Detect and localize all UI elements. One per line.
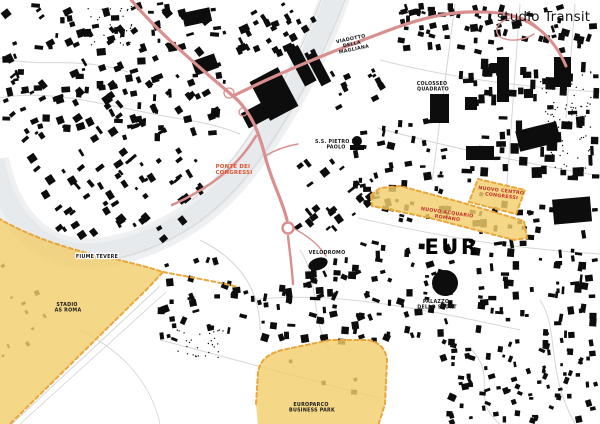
colosseo-quadrato-building: [465, 97, 477, 110]
studio-transit-logo: studio Transit: [497, 9, 590, 25]
label-ponte-dei-congressi: PONTE DEI CONGRESSI: [215, 164, 252, 176]
label-eur: EUR: [424, 235, 479, 259]
label-velodromo: VELODROMO: [309, 250, 346, 256]
roundabout: [283, 223, 294, 234]
label-viadotto-della-magliana: VIADOTTO DELLA MAGLIANA: [336, 33, 371, 56]
label-europarco-business-park: EUROPARCO BUSINESS PARK: [289, 402, 335, 413]
label-stadio-as-roma: STADIO AS ROMA: [55, 302, 82, 313]
palazzo-dello-sport-building: [432, 270, 458, 296]
label-fiume-tevere: FIUME TEVERE: [76, 254, 118, 260]
map-canvas: VIADOTTO DELLA MAGLIANA COLOSSEO QUADRAT…: [0, 0, 600, 424]
velodromo-building: [307, 255, 330, 273]
label-colosseo-quadrato: COLOSSEO QUADRATO: [417, 81, 450, 92]
